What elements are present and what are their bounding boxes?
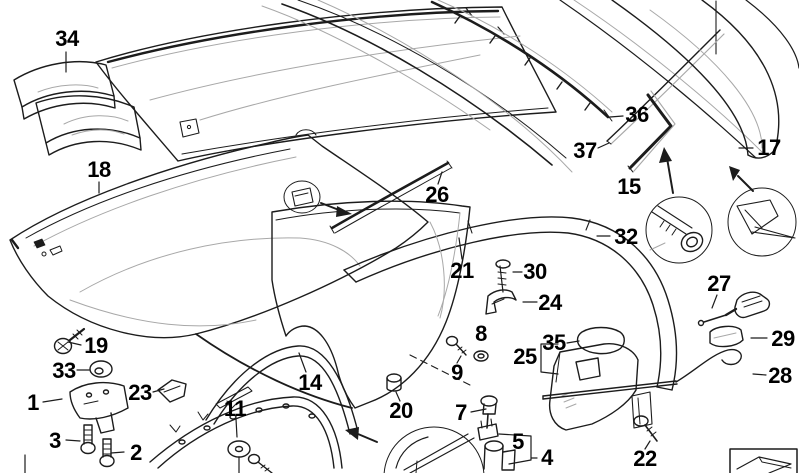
part-label-29[interactable]: 29 [771,328,794,350]
part-label-5[interactable]: 5 [512,431,524,453]
part-label-17[interactable]: 17 [757,137,780,159]
washer-33-drawing [90,361,112,377]
clip-24-drawing [486,290,516,314]
cover-34-drawing [14,62,141,155]
part-label-7[interactable]: 7 [455,402,467,424]
part-label-26[interactable]: 26 [425,184,448,206]
part-label-34[interactable]: 34 [55,28,78,50]
part-label-2[interactable]: 2 [130,442,142,464]
callout-circle-corner [728,188,796,256]
rod-tool-28-drawing [543,350,741,399]
screw-30-drawing [496,260,510,292]
part-label-27[interactable]: 27 [707,273,730,295]
bolt-3-drawing [81,425,95,454]
direction-box [730,449,797,473]
part-label-1[interactable]: 1 [27,392,39,414]
part-label-8[interactable]: 8 [475,323,487,345]
grommet-20-drawing [387,374,401,391]
rivet-22-drawing [634,416,657,441]
part-label-3[interactable]: 3 [49,430,61,452]
part-label-18[interactable]: 18 [87,159,110,181]
washer-drawing [228,441,250,457]
part-label-20[interactable]: 20 [389,400,412,422]
part-label-25[interactable]: 25 [513,346,536,368]
part-label-30[interactable]: 30 [523,261,546,283]
part-label-14[interactable]: 14 [298,372,321,394]
pad-29-drawing [710,326,743,346]
callout-circle-seal-end [646,197,712,263]
callout-circle-strip-section [384,427,484,473]
bracket-1-drawing [70,383,128,433]
part-label-11[interactable]: 11 [224,398,246,420]
part-label-24[interactable]: 24 [538,292,561,314]
pin-7-drawing [481,396,497,428]
part-label-15[interactable]: 15 [617,176,640,198]
part-label-23[interactable]: 23 [128,382,151,404]
holder-4-drawing [484,441,515,470]
nut-8-drawing [474,351,488,361]
callout-arrow-corner [729,166,753,191]
part-label-19[interactable]: 19 [84,335,107,357]
parts-diagram: 34 18 26 36 37 15 17 32 21 30 24 8 9 25 … [0,0,799,473]
clip-23-drawing [158,380,186,402]
screwdriver-27-drawing [699,292,770,325]
callout-circle-tab [284,181,320,213]
part-label-35[interactable]: 35 [542,332,565,354]
part-label-4[interactable]: 4 [541,447,553,469]
bolt-19-drawing [55,329,85,354]
pad-35-drawing [578,328,625,354]
part-label-32[interactable]: 32 [614,226,637,248]
callout-arrow-seal [659,147,673,193]
part-label-21[interactable]: 21 [450,260,473,282]
screw-drawing [249,455,273,473]
part-label-36[interactable]: 36 [625,104,648,126]
part-label-22[interactable]: 22 [633,448,656,470]
part-label-37[interactable]: 37 [573,140,596,162]
part-label-9[interactable]: 9 [451,362,463,384]
part-label-28[interactable]: 28 [768,365,791,387]
screw-9-drawing [447,337,467,356]
callout-arrow-molding [321,203,352,217]
part-label-33[interactable]: 33 [52,360,75,382]
